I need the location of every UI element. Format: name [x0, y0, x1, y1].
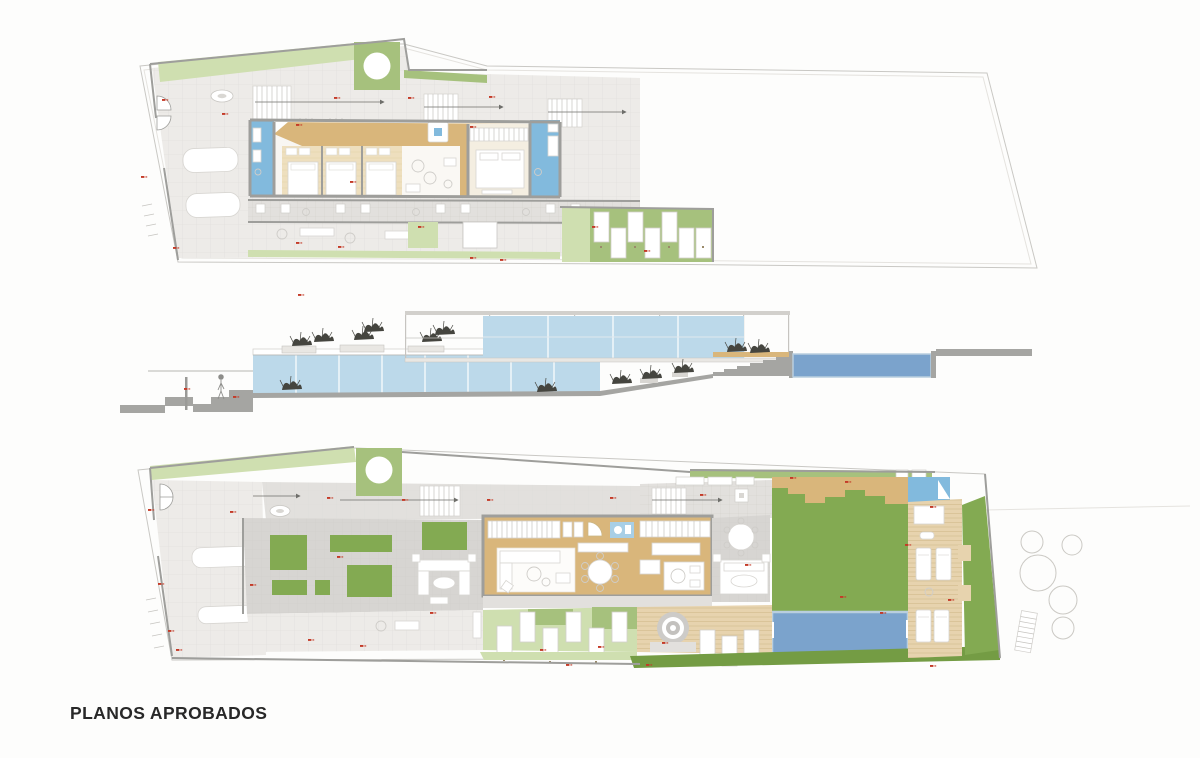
courtyard — [243, 518, 483, 614]
neighbor-line — [985, 506, 1190, 510]
bed-1 — [288, 162, 318, 195]
south-corridor — [483, 596, 712, 608]
lounger — [934, 610, 949, 642]
railing-post — [185, 377, 188, 410]
living-block — [483, 516, 712, 596]
green-band-ground — [150, 446, 356, 480]
terrain-left — [120, 371, 253, 413]
master-bedroom — [468, 124, 530, 196]
spa-circle — [657, 612, 689, 644]
sheet-title: PLANOS APROBADOS — [70, 703, 267, 724]
human-figure — [218, 375, 224, 399]
tree — [1021, 531, 1043, 553]
bed-2 — [326, 162, 356, 195]
roof-tree-circle — [364, 53, 391, 80]
upper-floor-plan — [140, 39, 1037, 268]
shelf — [578, 543, 628, 552]
skylight-oval-upper — [211, 90, 233, 102]
approved-plans-sheet: PLANOS APROBADOS — [0, 0, 1200, 758]
car-ground-2 — [198, 605, 255, 624]
lounger — [916, 610, 931, 642]
lounger — [916, 548, 931, 580]
bed-3 — [366, 162, 396, 195]
skylight-oval-ground — [270, 506, 290, 517]
roof-terrace-planters — [560, 207, 713, 262]
car-ground-1 — [192, 546, 254, 568]
tree — [1020, 555, 1056, 591]
east-deck — [908, 499, 962, 658]
section-elevation — [120, 311, 1032, 413]
patio — [712, 515, 770, 602]
patio-lounge — [713, 554, 770, 594]
patio-round-table — [728, 524, 754, 550]
drawings-svg — [0, 0, 1200, 758]
pool-section — [793, 354, 931, 377]
living-room — [497, 548, 575, 593]
car-upper-1 — [183, 147, 239, 173]
car-upper-2 — [186, 192, 241, 218]
exterior-stair — [1015, 611, 1038, 653]
bedroom-block — [250, 120, 560, 197]
ground-right-bar — [936, 349, 1032, 356]
family-room-upper — [402, 146, 460, 196]
tree-circle-ground — [366, 457, 393, 484]
south-terrace — [247, 610, 495, 652]
tree — [1049, 586, 1077, 614]
lounger — [936, 548, 951, 580]
green-sliver — [480, 652, 637, 660]
garden — [772, 477, 908, 612]
lawn — [772, 488, 908, 612]
roof-terrace-plants — [282, 318, 455, 353]
tree — [1052, 617, 1074, 639]
ground-floor-plan — [138, 446, 1190, 668]
tree — [1062, 535, 1082, 555]
